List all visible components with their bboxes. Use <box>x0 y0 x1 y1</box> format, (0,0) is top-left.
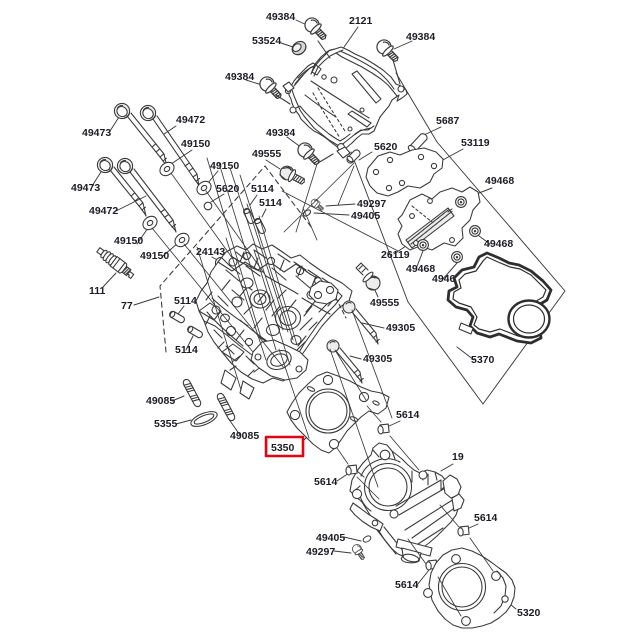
svg-text:49384: 49384 <box>225 71 254 83</box>
svg-text:53119: 53119 <box>461 137 490 149</box>
svg-text:2121: 2121 <box>349 15 373 27</box>
svg-text:49297: 49297 <box>357 198 386 210</box>
svg-text:49150: 49150 <box>114 235 143 247</box>
svg-text:77: 77 <box>121 300 133 312</box>
svg-text:49555: 49555 <box>252 148 281 160</box>
svg-text:5370: 5370 <box>471 354 495 366</box>
svg-text:49472: 49472 <box>89 205 118 217</box>
svg-text:49472: 49472 <box>176 114 205 126</box>
svg-text:49384: 49384 <box>266 11 295 23</box>
svg-text:5114: 5114 <box>251 183 274 195</box>
svg-text:49150: 49150 <box>181 138 210 150</box>
svg-text:24143: 24143 <box>196 246 225 258</box>
svg-text:111: 111 <box>89 285 106 297</box>
svg-text:26119: 26119 <box>381 249 410 261</box>
svg-text:49405: 49405 <box>316 532 345 544</box>
svg-text:49384: 49384 <box>406 31 435 43</box>
svg-text:49305: 49305 <box>363 353 392 365</box>
svg-text:5614: 5614 <box>314 476 338 488</box>
svg-text:5114: 5114 <box>259 197 282 209</box>
svg-text:5320: 5320 <box>517 607 541 619</box>
svg-text:53524: 53524 <box>252 35 281 47</box>
svg-text:5614: 5614 <box>474 512 498 524</box>
svg-text:49405: 49405 <box>351 210 380 222</box>
svg-text:5620: 5620 <box>374 141 398 153</box>
svg-text:5114: 5114 <box>174 295 197 307</box>
svg-text:5355: 5355 <box>154 418 178 430</box>
svg-text:49468: 49468 <box>484 238 513 250</box>
svg-text:49085: 49085 <box>230 430 259 442</box>
svg-text:5620: 5620 <box>216 183 240 195</box>
svg-text:5687: 5687 <box>436 115 460 127</box>
svg-text:19: 19 <box>452 451 464 463</box>
svg-text:5350: 5350 <box>271 442 295 454</box>
svg-text:5614: 5614 <box>395 579 419 591</box>
svg-text:49150: 49150 <box>140 250 169 262</box>
svg-text:49150: 49150 <box>210 160 239 172</box>
svg-text:5114: 5114 <box>175 344 198 356</box>
svg-text:49468: 49468 <box>485 175 514 187</box>
svg-text:49297: 49297 <box>306 546 335 558</box>
svg-text:5614: 5614 <box>396 409 420 421</box>
svg-text:49468: 49468 <box>406 263 435 275</box>
svg-text:49085: 49085 <box>146 395 175 407</box>
svg-text:49473: 49473 <box>82 127 111 139</box>
svg-text:49555: 49555 <box>370 297 399 309</box>
svg-text:49473: 49473 <box>71 182 100 194</box>
svg-text:49305: 49305 <box>386 322 415 334</box>
svg-text:49384: 49384 <box>266 127 295 139</box>
